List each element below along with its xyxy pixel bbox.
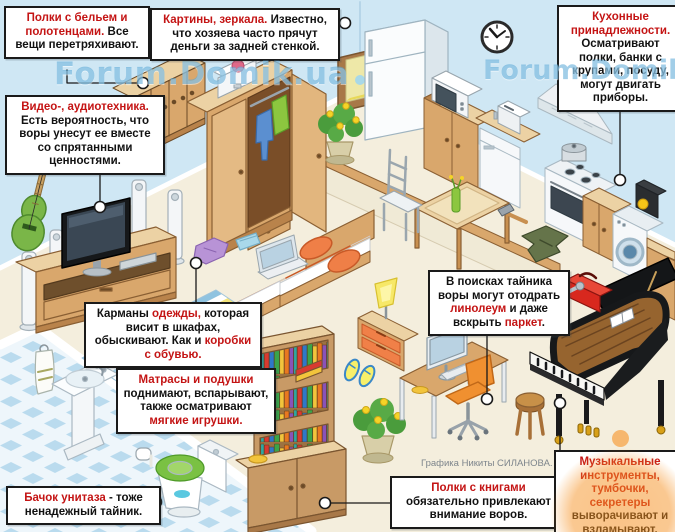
plate — [249, 455, 267, 463]
callout-kitchen-utensils: Кухонные принадлежности. Осматривают пол… — [557, 5, 675, 112]
callout-linen-shelves: Полки с бельем и полотенцами. Все вещи п… — [4, 6, 150, 59]
callout-book-shelves: Полки с книгами обязательно привлекают в… — [390, 476, 567, 529]
wardrobe-open-door — [292, 74, 326, 232]
callout-clothes-pockets: Карманы одежды, которая висит в шкафах, … — [84, 302, 262, 368]
towel — [35, 345, 54, 394]
cooking-pot — [562, 144, 586, 162]
callout-toilet-tank: Бачок унитаза - тоже ненадежный тайник. — [6, 486, 161, 525]
callout-mattresses-pillows: Матрасы и подушки поднимают, вспарывают,… — [116, 368, 276, 434]
callout-paintings-mirrors: Картины, зеркала. Известно, что хозяева … — [150, 8, 340, 61]
callout-floor-hiding: В поисках тайника воры могут отодрать ли… — [428, 270, 570, 336]
callout-video-audio: Видео-, аудиотехника. Есть вероятность, … — [5, 95, 165, 175]
credit-line: Графика Никиты СИЛАНОВА. — [421, 459, 571, 469]
wall-clock — [482, 22, 512, 52]
green-top — [272, 95, 289, 135]
callout-musical-instruments: Музыкальные инструменты, тумбочки, секре… — [554, 450, 675, 532]
infographic-burglar-hiding-places: Полки с бельем и полотенцами. Все вещи п… — [0, 0, 675, 532]
desk-plate — [412, 387, 428, 394]
